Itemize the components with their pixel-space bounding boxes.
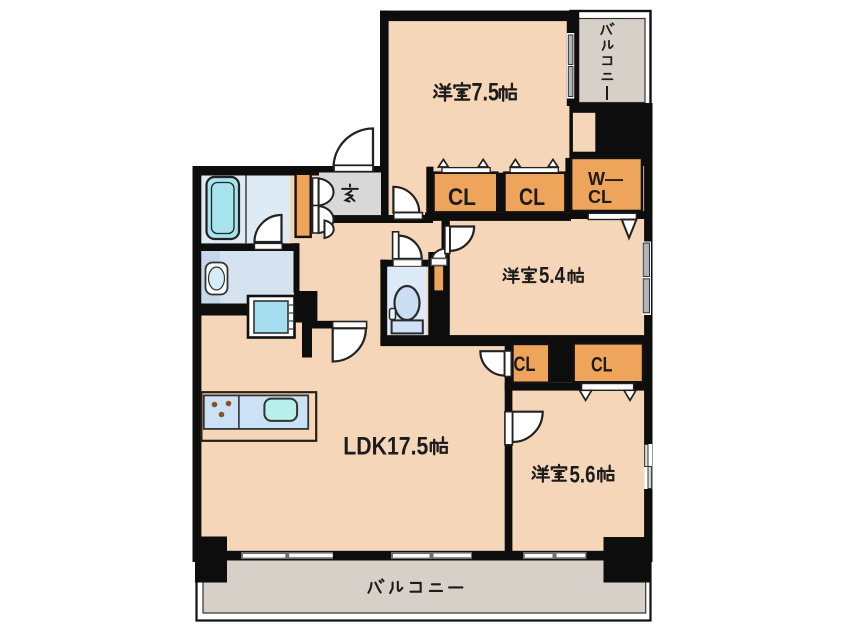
svg-text:CL: CL xyxy=(448,184,476,211)
svg-text:CL: CL xyxy=(519,184,545,211)
svg-text:5.4: 5.4 xyxy=(539,262,565,288)
svg-text:CL: CL xyxy=(514,353,536,376)
svg-text:LDK17.5: LDK17.5 xyxy=(343,433,428,461)
svg-text:CL: CL xyxy=(588,187,612,207)
svg-text:7.5: 7.5 xyxy=(472,79,500,107)
svg-text:CL: CL xyxy=(591,353,613,376)
svg-text:5.6: 5.6 xyxy=(570,462,596,489)
svg-text:W—: W— xyxy=(588,169,623,189)
